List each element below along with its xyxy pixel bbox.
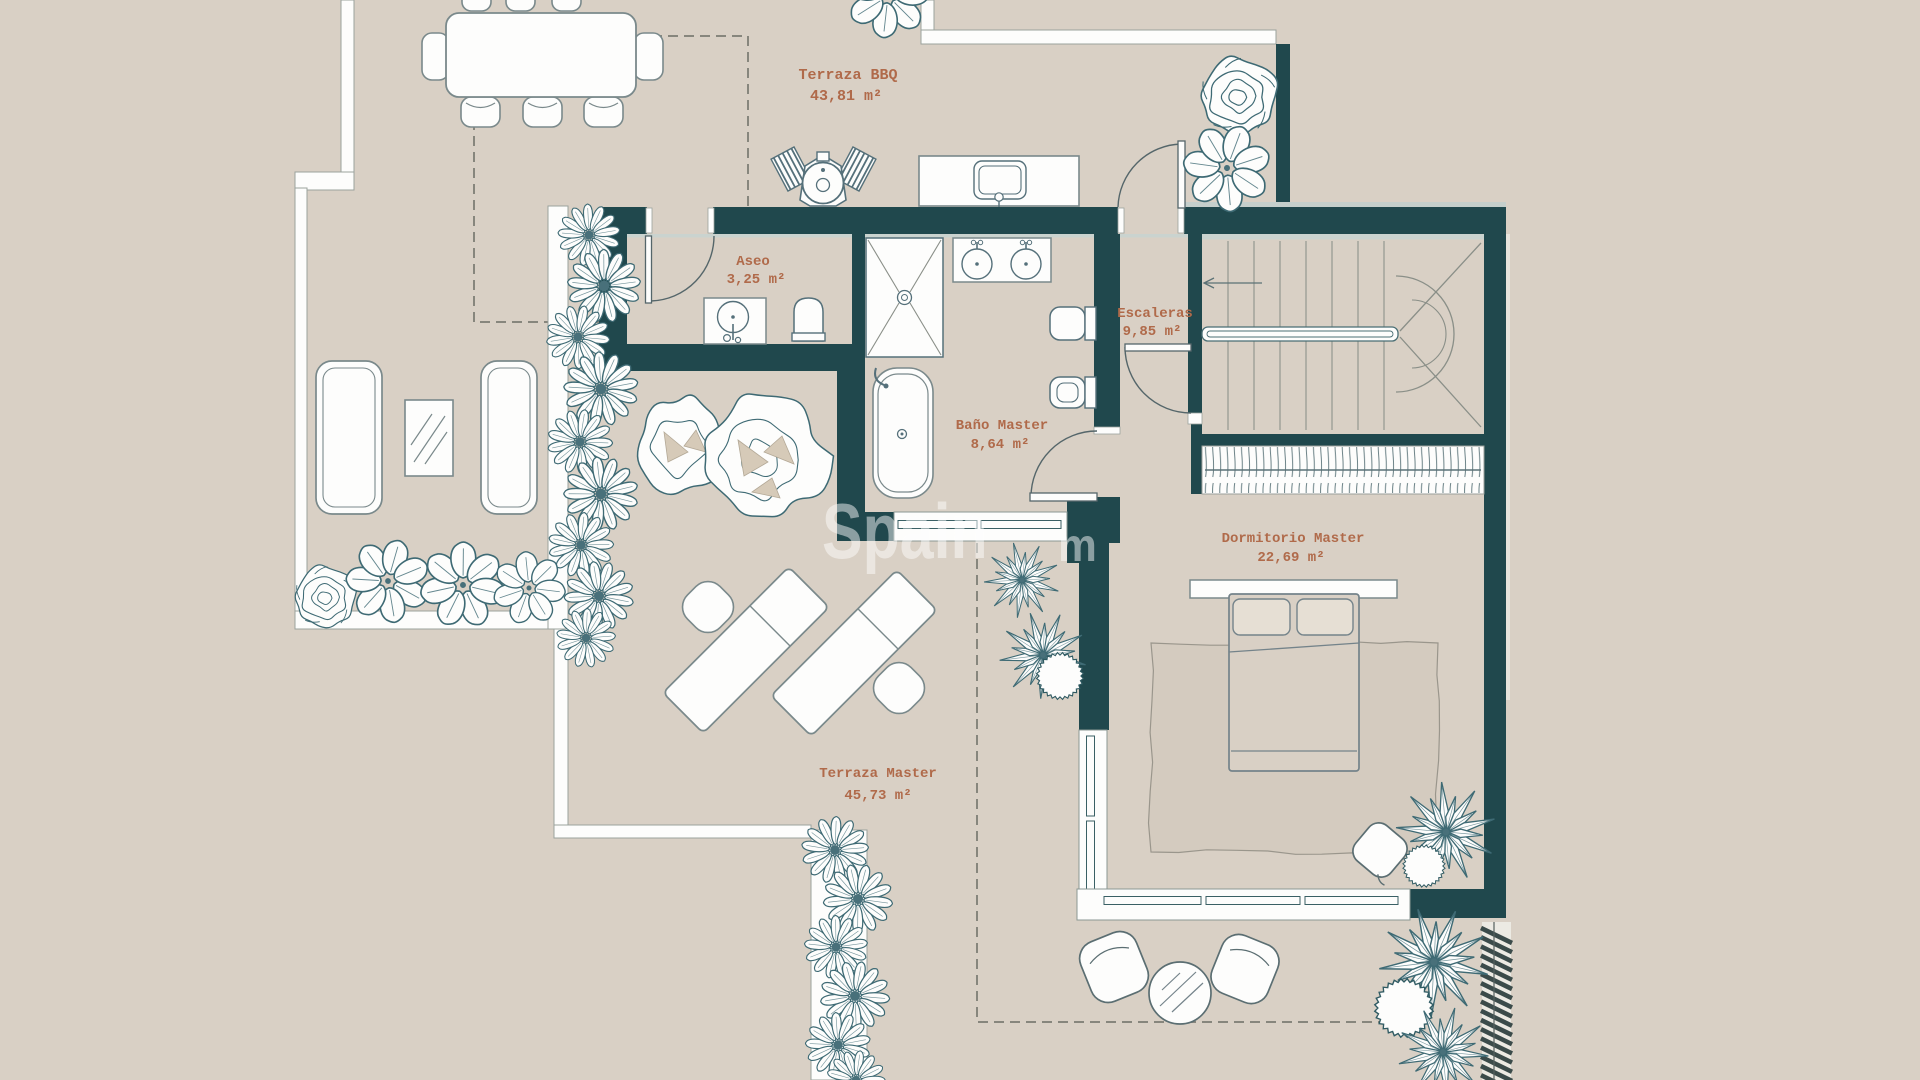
svg-text:Escaleras: Escaleras — [1117, 306, 1193, 322]
svg-text:Terraza BBQ: Terraza BBQ — [798, 67, 897, 84]
svg-text:22,69 m²: 22,69 m² — [1257, 550, 1324, 566]
svg-text:8,64 m²: 8,64 m² — [971, 437, 1030, 453]
svg-text:m: m — [1058, 519, 1097, 571]
svg-text:Terraza Master: Terraza Master — [819, 766, 937, 782]
svg-text:Aseo: Aseo — [736, 254, 770, 270]
svg-text:45,73 m²: 45,73 m² — [844, 788, 911, 804]
svg-text:Dormitorio Master: Dormitorio Master — [1222, 531, 1365, 547]
svg-text:43,81 m²: 43,81 m² — [810, 88, 882, 105]
svg-text:9,85 m²: 9,85 m² — [1123, 324, 1182, 340]
svg-text:Spain: Spain — [822, 488, 988, 575]
svg-text:Baño Master: Baño Master — [956, 418, 1048, 434]
svg-text:3,25 m²: 3,25 m² — [727, 272, 786, 288]
